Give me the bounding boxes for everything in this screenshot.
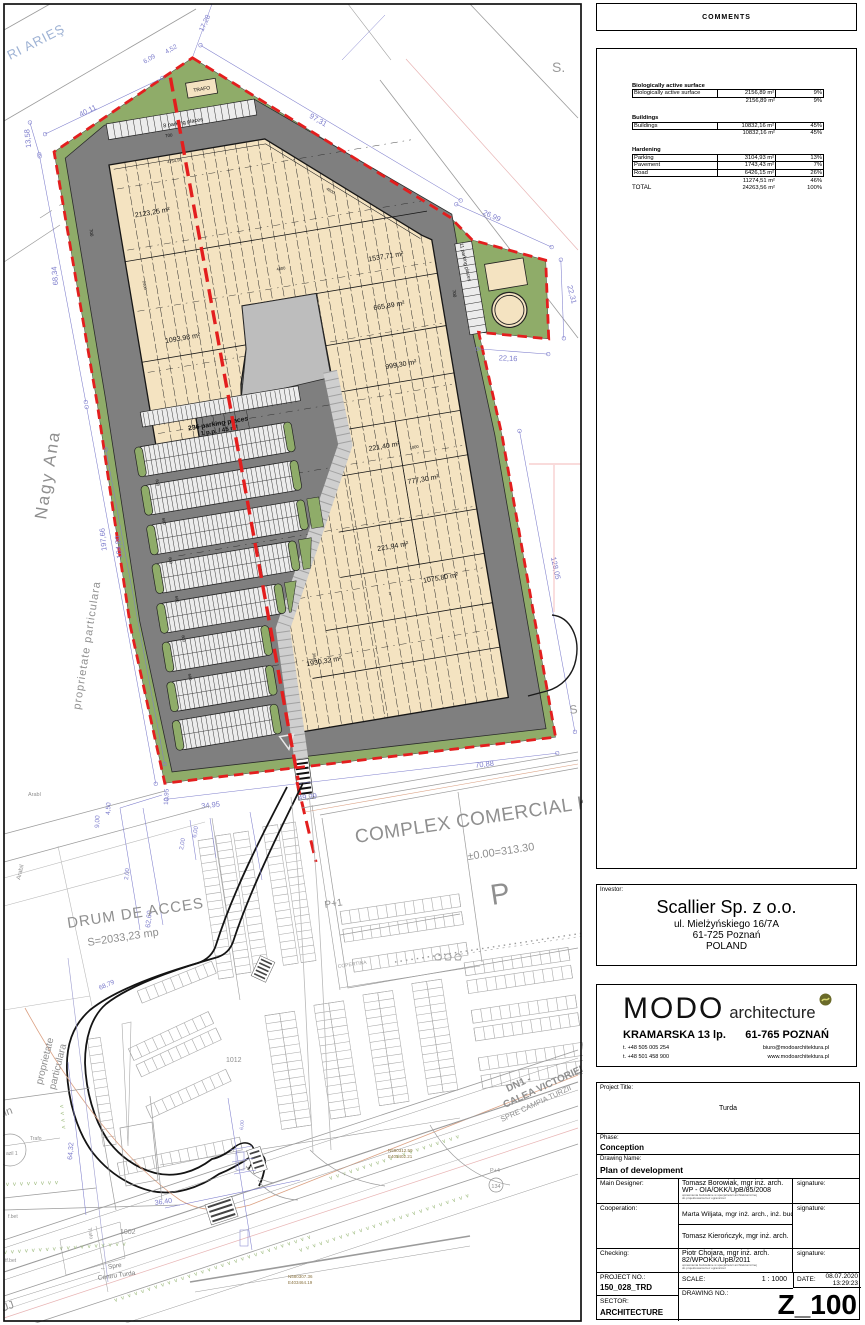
- svg-text:Nagy Ana: Nagy Ana: [31, 429, 64, 521]
- svg-text:v: v: [13, 1182, 16, 1188]
- svg-text:P+1: P+1: [324, 897, 344, 911]
- svg-text:v: v: [372, 1223, 377, 1230]
- svg-text:v: v: [415, 1147, 420, 1154]
- svg-text:v: v: [435, 1141, 440, 1148]
- svg-text:v: v: [312, 1243, 317, 1250]
- svg-text:v: v: [335, 1173, 340, 1180]
- svg-text:v: v: [74, 1245, 77, 1251]
- svg-text:v: v: [432, 1204, 437, 1211]
- svg-text:v: v: [392, 1217, 397, 1224]
- svg-text:v: v: [67, 1245, 70, 1251]
- svg-text:v: v: [465, 1193, 470, 1200]
- svg-text:v: v: [32, 1248, 35, 1254]
- svg-text:Trafo: Trafo: [30, 1136, 42, 1142]
- svg-text:v: v: [382, 1158, 387, 1165]
- svg-text:4,50: 4,50: [105, 802, 112, 815]
- svg-text:v: v: [247, 1254, 252, 1261]
- svg-text:v: v: [405, 1213, 410, 1220]
- svg-text:v: v: [349, 1169, 354, 1176]
- svg-text:v: v: [379, 1221, 384, 1228]
- svg-text:17,28: 17,28: [198, 14, 212, 33]
- svg-text:v: v: [20, 1181, 23, 1187]
- svg-text:v: v: [452, 1198, 457, 1205]
- svg-text:v: v: [214, 1265, 219, 1272]
- svg-text:P+4: P+4: [490, 1168, 500, 1174]
- svg-text:v: v: [429, 1143, 434, 1150]
- svg-text:v: v: [422, 1145, 427, 1152]
- svg-text:v: v: [352, 1230, 357, 1237]
- svg-text:COPERTINA: COPERTINA: [337, 960, 367, 970]
- svg-text:S.: S.: [552, 59, 565, 75]
- svg-text:v: v: [6, 1182, 9, 1188]
- svg-text:S: S: [568, 702, 578, 717]
- svg-text:97,31: 97,31: [308, 111, 329, 128]
- svg-text:v: v: [274, 1245, 279, 1252]
- svg-text:13,58: 13,58: [22, 129, 33, 149]
- svg-text:134: 134: [491, 1184, 500, 1190]
- svg-text:v: v: [260, 1250, 265, 1257]
- svg-text:v: v: [359, 1228, 364, 1235]
- svg-text:v: v: [220, 1263, 225, 1270]
- svg-text:v: v: [127, 1293, 132, 1300]
- svg-text:v: v: [455, 1134, 460, 1141]
- svg-text:6,09: 6,09: [142, 53, 157, 66]
- svg-text:v: v: [134, 1291, 139, 1298]
- svg-text:v: v: [25, 1248, 28, 1254]
- svg-text:v: v: [207, 1267, 212, 1274]
- svg-text:10,95: 10,95: [163, 788, 171, 805]
- svg-text:v: v: [60, 1126, 66, 1130]
- svg-text:v: v: [254, 1252, 259, 1259]
- svg-text:v: v: [34, 1181, 37, 1187]
- svg-text:N580307.36: N580307.36: [288, 1274, 313, 1279]
- svg-text:v: v: [399, 1215, 404, 1222]
- svg-text:v: v: [459, 1195, 464, 1202]
- svg-text:v: v: [375, 1160, 380, 1167]
- svg-text:v: v: [307, 1235, 312, 1242]
- svg-text:34,95: 34,95: [201, 799, 221, 810]
- svg-text:v: v: [332, 1236, 337, 1243]
- svg-text:40,11: 40,11: [78, 103, 98, 119]
- svg-text:4,52: 4,52: [164, 43, 179, 56]
- svg-text:v: v: [174, 1278, 179, 1285]
- svg-text:v: v: [101, 1243, 104, 1249]
- svg-text:zin: zin: [0, 1105, 14, 1121]
- svg-text:6,00: 6,00: [239, 1120, 246, 1130]
- svg-text:v: v: [18, 1249, 21, 1255]
- svg-text:2,00: 2,00: [179, 837, 187, 850]
- svg-text:64,32: 64,32: [67, 1142, 76, 1160]
- svg-text:v: v: [114, 1297, 119, 1304]
- svg-text:v: v: [362, 1164, 367, 1171]
- svg-text:v: v: [187, 1273, 192, 1280]
- svg-text:P: P: [488, 877, 512, 912]
- svg-text:azil 1: azil 1: [6, 1151, 18, 1157]
- svg-text:proprietate particulara: proprietate particulara: [71, 580, 103, 710]
- svg-text:v: v: [94, 1243, 97, 1249]
- svg-text:v: v: [41, 1181, 44, 1187]
- svg-text:v: v: [46, 1247, 49, 1253]
- svg-text:DRUM DE ACCES: DRUM DE ACCES: [66, 895, 205, 932]
- svg-text:N580312.50: N580312.50: [388, 1148, 413, 1153]
- svg-text:v: v: [147, 1286, 152, 1293]
- svg-text:v: v: [267, 1248, 272, 1255]
- svg-text:v: v: [287, 1241, 292, 1248]
- svg-text:v: v: [167, 1280, 172, 1287]
- svg-text:v: v: [194, 1271, 199, 1278]
- svg-text:v: v: [329, 1175, 334, 1182]
- svg-text:v: v: [58, 1105, 64, 1109]
- svg-text:v: v: [419, 1208, 424, 1215]
- svg-text:RI ARIEŞ: RI ARIEŞ: [5, 21, 68, 63]
- svg-text:v: v: [59, 1119, 65, 1123]
- svg-text:E403464.19: E403464.19: [288, 1280, 313, 1285]
- svg-text:v: v: [160, 1282, 165, 1289]
- svg-text:v: v: [11, 1249, 14, 1255]
- svg-text:v: v: [299, 1247, 304, 1254]
- svg-text:v: v: [234, 1258, 239, 1265]
- svg-text:E403402.21: E403402.21: [388, 1154, 413, 1159]
- svg-text:v: v: [425, 1206, 430, 1213]
- svg-text:v: v: [200, 1269, 205, 1276]
- svg-text:UJ: UJ: [0, 1299, 16, 1315]
- svg-text:v: v: [59, 1112, 65, 1116]
- svg-text:v: v: [88, 1244, 91, 1250]
- svg-text:S=2033,23 mp: S=2033,23 mp: [87, 926, 160, 948]
- svg-text:v: v: [325, 1239, 330, 1246]
- svg-text:v: v: [445, 1200, 450, 1207]
- svg-text:Trafo: Trafo: [86, 1227, 94, 1240]
- svg-text:f.bet: f.bet: [8, 1214, 18, 1220]
- svg-text:700: 700: [165, 132, 174, 138]
- svg-text:v: v: [294, 1239, 299, 1246]
- svg-text:v: v: [355, 1167, 360, 1174]
- svg-text:v: v: [369, 1162, 374, 1169]
- svg-text:v: v: [53, 1246, 56, 1252]
- svg-text:Arabl: Arabl: [28, 792, 41, 798]
- svg-text:v: v: [154, 1284, 159, 1291]
- svg-text:v: v: [55, 1180, 58, 1186]
- svg-text:v: v: [120, 1295, 125, 1302]
- svg-text:v: v: [180, 1276, 185, 1283]
- svg-text:v: v: [227, 1260, 232, 1267]
- svg-text:v: v: [81, 1244, 84, 1250]
- svg-text:COMPLEX COMERCIAL K: COMPLEX COMERCIAL K: [354, 792, 592, 848]
- svg-text:9,00: 9,00: [94, 815, 101, 828]
- svg-text:v: v: [300, 1237, 305, 1244]
- svg-text:26,99: 26,99: [481, 208, 502, 224]
- svg-text:2,00: 2,00: [124, 867, 131, 880]
- svg-text:v: v: [140, 1289, 145, 1296]
- svg-text:v: v: [108, 1242, 111, 1248]
- svg-text:68,79: 68,79: [98, 979, 116, 992]
- svg-text:v: v: [27, 1181, 30, 1187]
- svg-text:1002: 1002: [120, 1229, 136, 1236]
- svg-text:v: v: [365, 1226, 370, 1233]
- svg-text:v: v: [240, 1256, 245, 1263]
- svg-text:6,00: 6,00: [192, 825, 200, 838]
- svg-text:22,16: 22,16: [499, 353, 518, 363]
- svg-text:v: v: [339, 1234, 344, 1241]
- svg-text:128,05: 128,05: [549, 556, 563, 580]
- svg-text:22,31: 22,31: [565, 284, 578, 304]
- svg-text:v: v: [280, 1243, 285, 1250]
- svg-text:v: v: [449, 1136, 454, 1143]
- svg-text:v: v: [115, 1242, 118, 1248]
- svg-text:v: v: [385, 1219, 390, 1226]
- svg-text:v: v: [412, 1210, 417, 1217]
- svg-text:±0.00=313.30: ±0.00=313.30: [467, 841, 536, 863]
- svg-text:v: v: [319, 1241, 324, 1248]
- svg-text:v: v: [345, 1232, 350, 1239]
- svg-text:v: v: [39, 1247, 42, 1253]
- svg-text:v: v: [439, 1202, 444, 1209]
- svg-text:tf.bet: tf.bet: [5, 1258, 17, 1264]
- svg-text:v: v: [305, 1245, 310, 1252]
- svg-text:v: v: [48, 1180, 51, 1186]
- svg-text:197,66: 197,66: [97, 528, 108, 552]
- svg-text:68,34: 68,34: [49, 266, 60, 286]
- svg-text:1012: 1012: [226, 1057, 242, 1064]
